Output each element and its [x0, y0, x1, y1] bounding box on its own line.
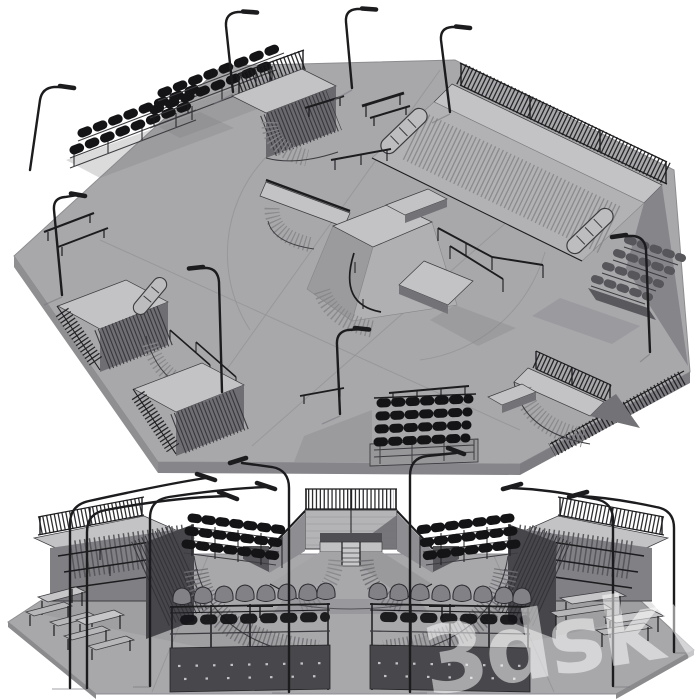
- lamp-head-icon: [189, 267, 203, 269]
- lamp-head-icon: [355, 328, 369, 330]
- skatepark-render: 3dsky: [0, 0, 700, 700]
- lamp-head-icon: [71, 194, 85, 197]
- seat-row: [379, 425, 467, 429]
- seat-row: [185, 617, 325, 620]
- seat-row: [380, 412, 468, 416]
- seat-row: [381, 399, 469, 403]
- lamp-head-icon: [612, 235, 626, 237]
- lamp-head-icon: [60, 86, 74, 88]
- seat-row: [378, 438, 466, 442]
- lamp-head-icon: [243, 12, 257, 13]
- lamp-head-icon: [456, 27, 470, 29]
- lamp-head-icon: [362, 9, 376, 10]
- render-figure: 3dsky Grayscale 3D clay render of a modu…: [0, 0, 700, 700]
- plaza-edge-face: [158, 462, 520, 475]
